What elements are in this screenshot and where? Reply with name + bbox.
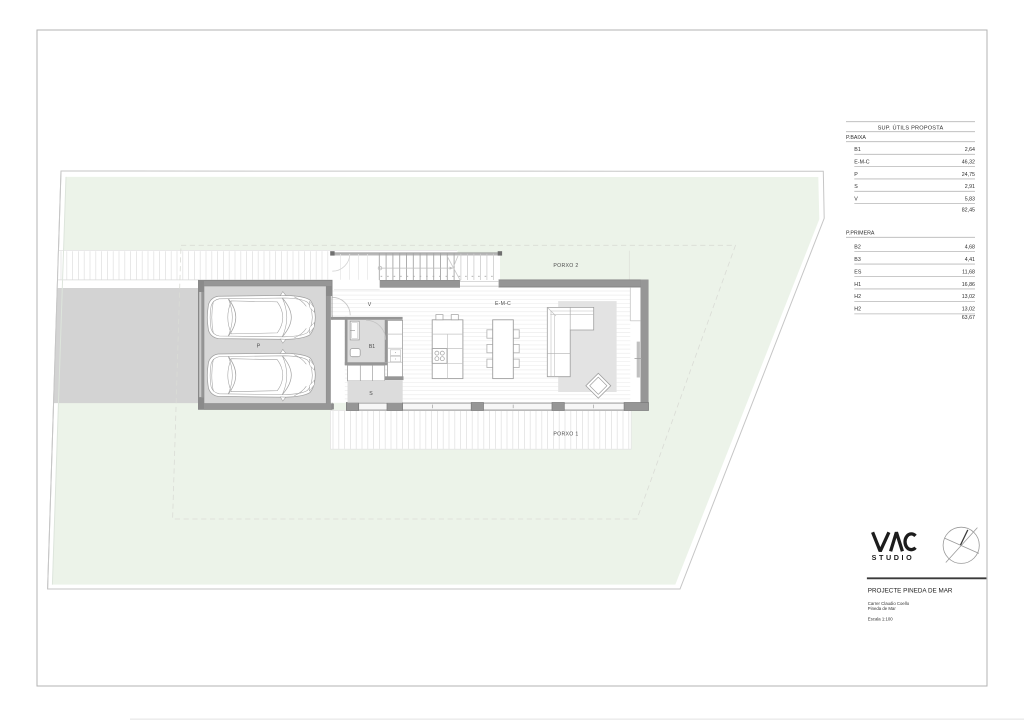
svg-text:B1: B1 xyxy=(854,147,861,153)
svg-text:P.BAIXA: P.BAIXA xyxy=(846,135,866,141)
svg-text:16,86: 16,86 xyxy=(962,282,975,288)
svg-text:46,32: 46,32 xyxy=(962,159,975,165)
svg-text:H1: H1 xyxy=(854,282,861,288)
svg-text:2,64: 2,64 xyxy=(965,147,975,153)
svg-text:2,91: 2,91 xyxy=(965,184,975,190)
svg-text:S: S xyxy=(854,184,858,190)
svg-text:63,67: 63,67 xyxy=(962,315,975,321)
svg-text:STUDIO: STUDIO xyxy=(872,553,915,562)
svg-text:P: P xyxy=(854,172,858,178)
svg-text:82,45: 82,45 xyxy=(962,207,975,213)
svg-text:SUP. ÚTILS PROPOSTA: SUP. ÚTILS PROPOSTA xyxy=(878,124,944,131)
svg-text:5,83: 5,83 xyxy=(965,196,975,202)
svg-text:E-M-C: E-M-C xyxy=(495,301,511,307)
svg-text:11,68: 11,68 xyxy=(962,269,975,275)
svg-text:Escala 1:100: Escala 1:100 xyxy=(868,617,893,622)
svg-text:B3: B3 xyxy=(854,257,861,263)
svg-text:B1: B1 xyxy=(369,344,375,350)
svg-text:H2: H2 xyxy=(854,307,861,313)
svg-text:PROJECTE PINEDA DE MAR: PROJECTE PINEDA DE MAR xyxy=(868,588,953,595)
svg-text:13,02: 13,02 xyxy=(962,294,975,300)
svg-text:S: S xyxy=(369,391,373,397)
svg-text:Pineda de Mar: Pineda de Mar xyxy=(868,606,897,611)
svg-text:13,02: 13,02 xyxy=(962,307,975,313)
svg-text:4,41: 4,41 xyxy=(965,257,975,263)
svg-text:E-M-C: E-M-C xyxy=(854,159,869,165)
svg-text:B2: B2 xyxy=(854,244,861,250)
svg-text:P: P xyxy=(257,344,261,350)
svg-text:V: V xyxy=(368,302,372,308)
svg-text:ES: ES xyxy=(854,269,862,275)
svg-text:PORXO 2: PORXO 2 xyxy=(553,263,578,269)
svg-text:24,75: 24,75 xyxy=(962,172,975,178)
svg-text:PORXO 1: PORXO 1 xyxy=(553,432,578,438)
svg-text:4,68: 4,68 xyxy=(965,244,975,250)
svg-text:H2: H2 xyxy=(854,294,861,300)
svg-text:V: V xyxy=(854,196,858,202)
svg-text:P.PRIMERA: P.PRIMERA xyxy=(846,230,875,236)
